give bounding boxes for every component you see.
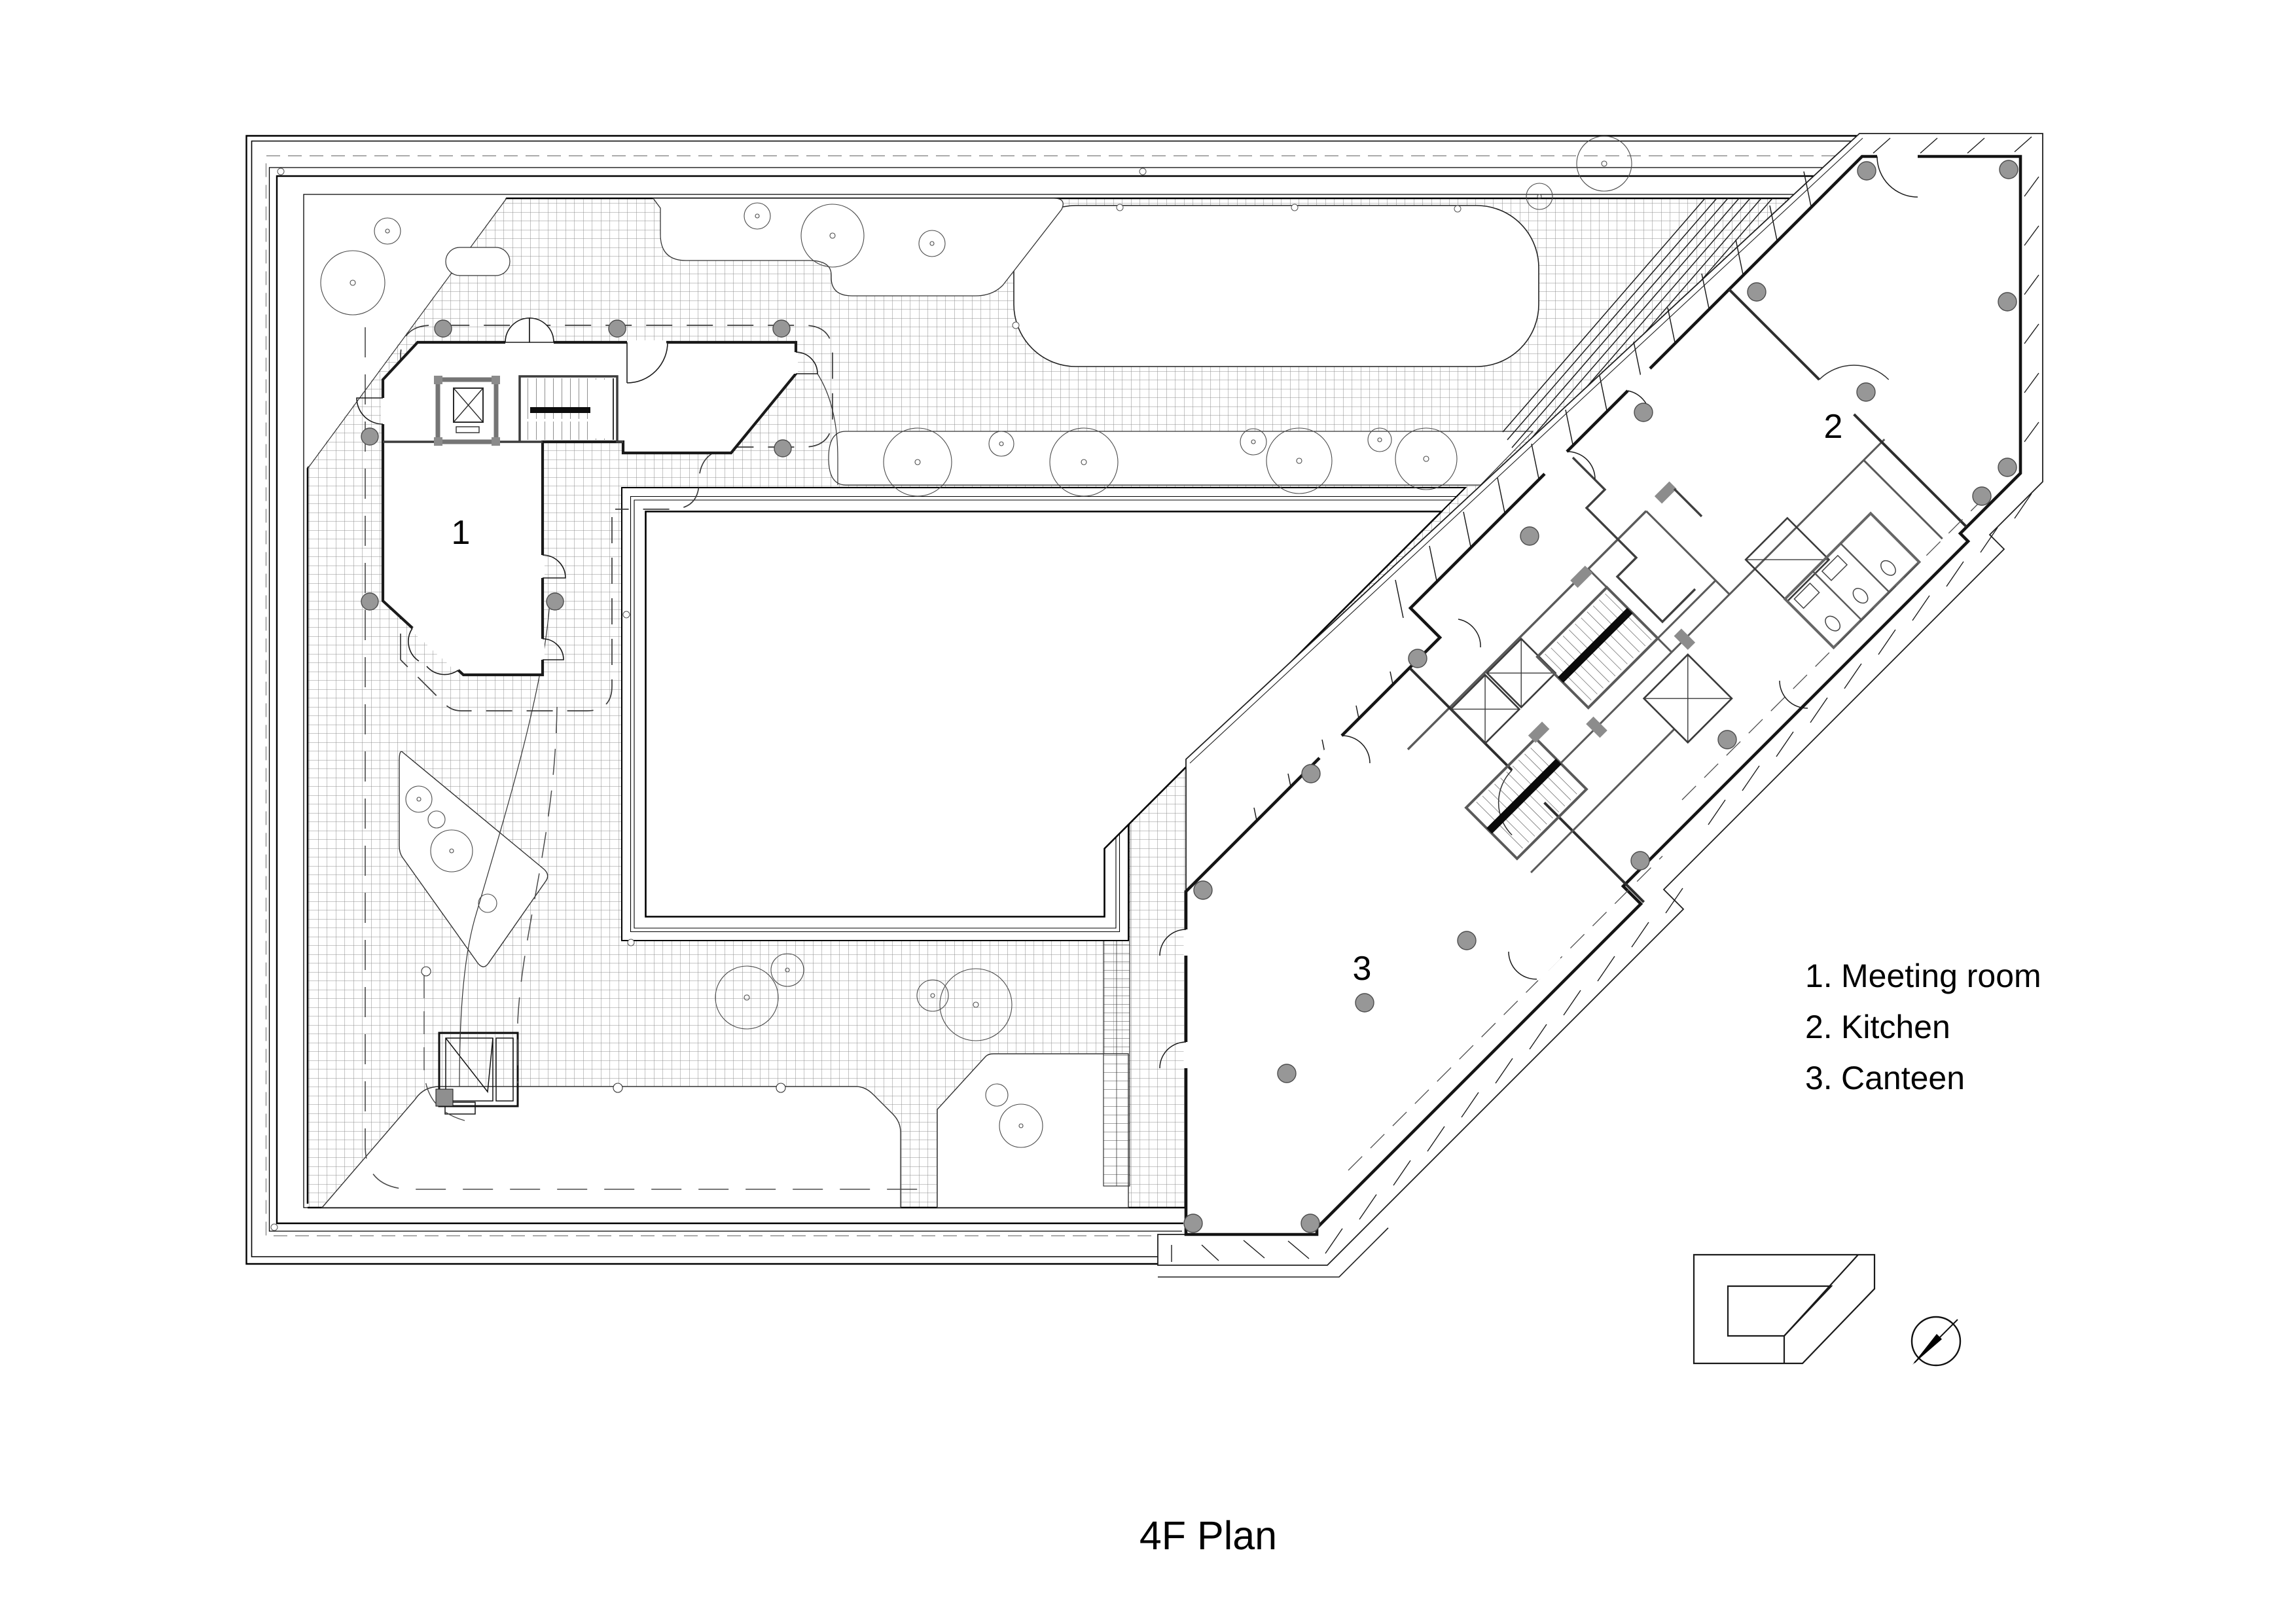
svg-text:1.Meeting room: 1.Meeting room	[1805, 958, 2041, 994]
svg-text:2: 2	[1824, 408, 1843, 446]
svg-text:1: 1	[452, 514, 471, 552]
svg-text:4F Plan: 4F Plan	[1139, 1513, 1277, 1558]
svg-text:3.Canteen: 3.Canteen	[1805, 1060, 1965, 1096]
svg-text:2.Kitchen: 2.Kitchen	[1805, 1009, 1950, 1045]
svg-text:3: 3	[1353, 950, 1372, 988]
